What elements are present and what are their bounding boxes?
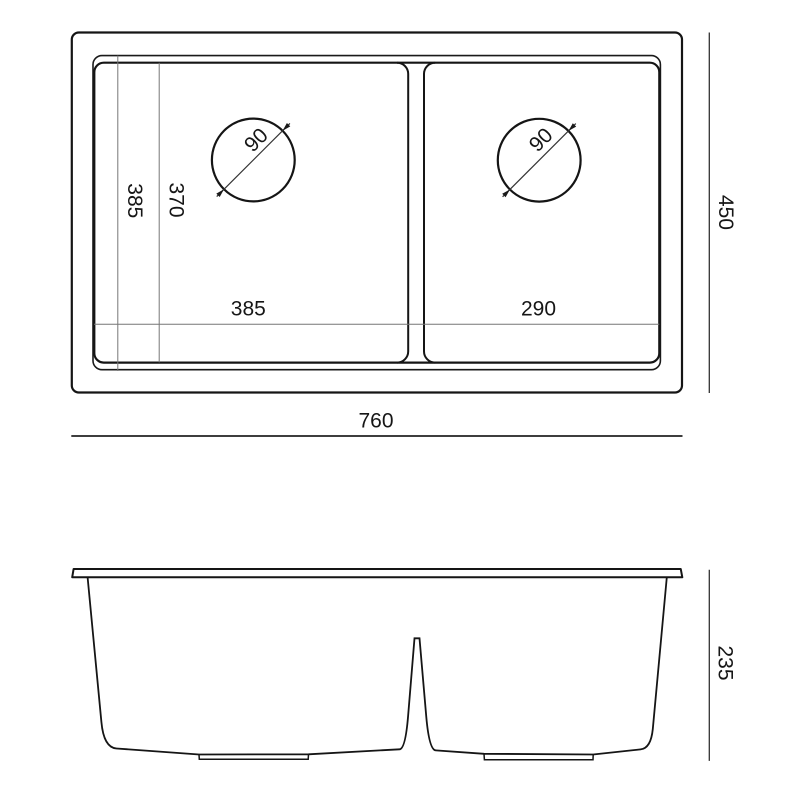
- svg-text:760: 760: [358, 410, 393, 433]
- svg-text:385: 385: [123, 183, 146, 218]
- svg-text:370: 370: [165, 182, 188, 217]
- svg-text:385: 385: [231, 298, 266, 321]
- svg-text:235: 235: [713, 645, 736, 680]
- svg-text:450: 450: [714, 195, 737, 230]
- svg-text:290: 290: [521, 298, 556, 321]
